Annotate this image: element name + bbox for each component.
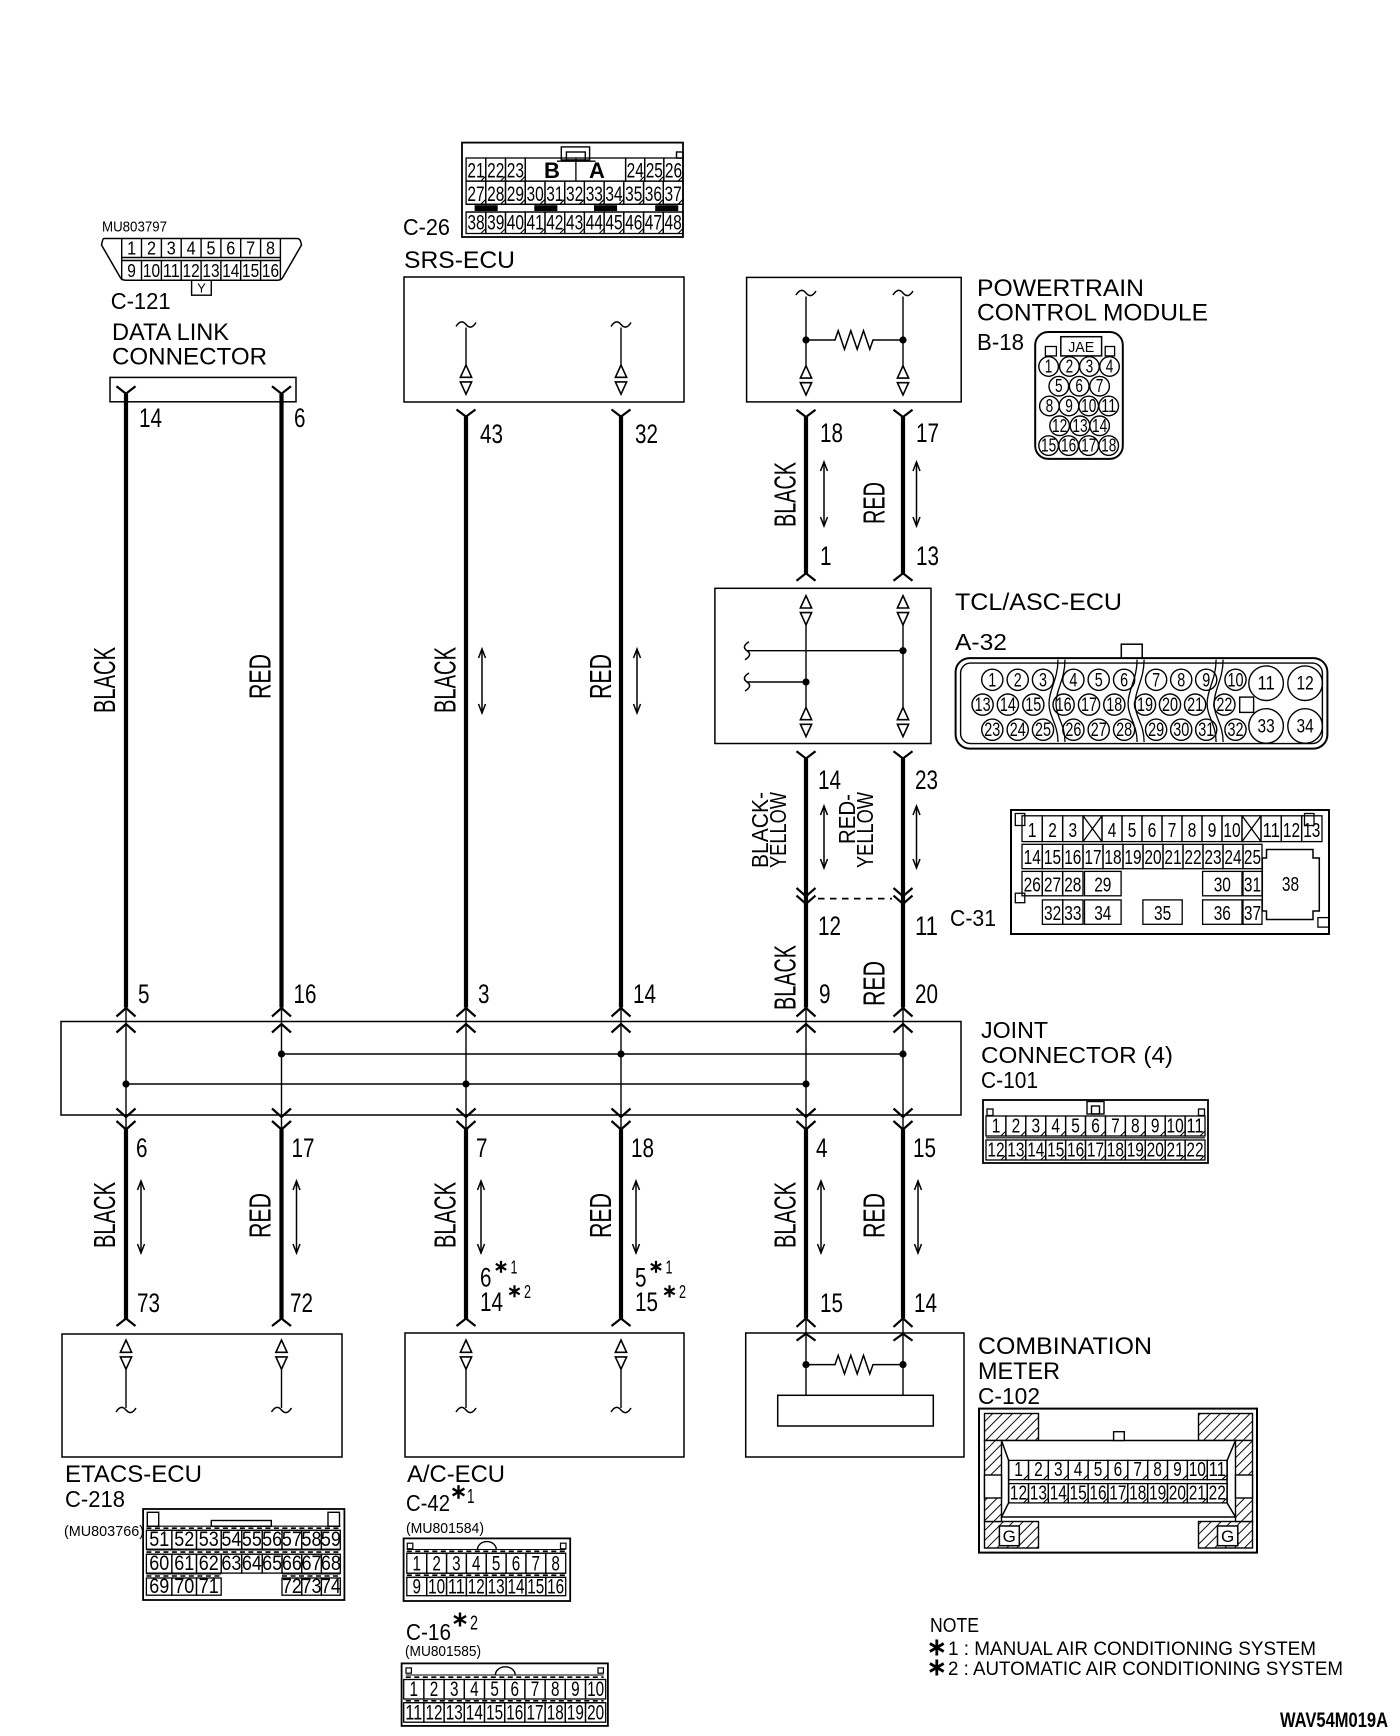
svg-text:2: 2 <box>1012 1115 1021 1137</box>
svg-text:28: 28 <box>1064 874 1081 896</box>
svg-text:6: 6 <box>1120 670 1128 691</box>
svg-text:6: 6 <box>512 1552 521 1575</box>
svg-text:15: 15 <box>242 261 259 281</box>
svg-text:14: 14 <box>139 403 162 433</box>
svg-text:34: 34 <box>1094 903 1111 925</box>
svg-text:15: 15 <box>1070 1482 1087 1504</box>
svg-text:2: 2 <box>679 1282 686 1302</box>
svg-text:3: 3 <box>452 1552 461 1575</box>
svg-text:2 : AUTOMATIC AIR CONDITIONING: 2 : AUTOMATIC AIR CONDITIONING SYSTEM <box>948 1659 1343 1680</box>
svg-text:5: 5 <box>1071 1115 1080 1137</box>
svg-text:35: 35 <box>625 183 642 206</box>
svg-text:31: 31 <box>1244 874 1261 896</box>
svg-text:18: 18 <box>1106 695 1122 716</box>
svg-text:7: 7 <box>1152 670 1160 691</box>
svg-text:12: 12 <box>183 261 200 281</box>
svg-text:4: 4 <box>1051 1115 1060 1137</box>
svg-text:G: G <box>1221 1527 1234 1546</box>
svg-text:43: 43 <box>566 212 583 235</box>
svg-text:(MU801584): (MU801584) <box>406 1520 484 1537</box>
svg-text:6: 6 <box>1148 820 1157 842</box>
svg-text:64: 64 <box>242 1552 262 1575</box>
svg-text:C-121: C-121 <box>111 288 171 314</box>
svg-text:13: 13 <box>916 541 939 571</box>
svg-text:20: 20 <box>1169 1482 1186 1504</box>
svg-text:72: 72 <box>290 1288 313 1318</box>
svg-text:3: 3 <box>478 979 490 1009</box>
svg-text:12: 12 <box>468 1576 485 1599</box>
svg-text:12: 12 <box>818 911 841 941</box>
svg-text:BLACK: BLACK <box>768 462 803 527</box>
svg-text:5: 5 <box>138 979 150 1009</box>
svg-text:8: 8 <box>1177 670 1185 691</box>
svg-text:2: 2 <box>147 238 156 258</box>
svg-text:5: 5 <box>1095 670 1103 691</box>
svg-text:15: 15 <box>635 1287 658 1317</box>
svg-text:RED: RED <box>857 482 892 524</box>
svg-text:23: 23 <box>507 160 524 183</box>
svg-text:BLACK: BLACK <box>87 1182 122 1248</box>
svg-text:18: 18 <box>631 1133 654 1163</box>
svg-text:67: 67 <box>302 1552 322 1575</box>
svg-text:COMBINATION: COMBINATION <box>978 1333 1152 1360</box>
svg-text:12: 12 <box>1283 820 1300 842</box>
svg-text:14: 14 <box>633 979 656 1009</box>
svg-text:36: 36 <box>1214 903 1231 925</box>
svg-text:17: 17 <box>527 1701 544 1724</box>
svg-text:19: 19 <box>1124 847 1141 869</box>
svg-text:26: 26 <box>1065 720 1081 741</box>
svg-text:RED: RED <box>583 1193 618 1238</box>
svg-text:13: 13 <box>488 1576 505 1599</box>
svg-text:17: 17 <box>1087 1139 1104 1161</box>
svg-text:42: 42 <box>546 212 563 235</box>
svg-text:14: 14 <box>1024 847 1041 869</box>
svg-text:40: 40 <box>507 212 524 235</box>
svg-text:BLACK: BLACK <box>768 1182 803 1248</box>
svg-text:19: 19 <box>567 1701 584 1724</box>
svg-text:5: 5 <box>1055 376 1063 396</box>
svg-text:YELLOW: YELLOW <box>852 792 878 868</box>
svg-text:5: 5 <box>207 238 216 258</box>
svg-text:2: 2 <box>1034 1459 1043 1481</box>
svg-text:17: 17 <box>1084 847 1101 869</box>
svg-text:44: 44 <box>586 212 603 235</box>
svg-text:8: 8 <box>1046 396 1054 416</box>
svg-text:48: 48 <box>665 212 682 235</box>
svg-text:47: 47 <box>645 212 662 235</box>
svg-text:4: 4 <box>1074 1459 1083 1481</box>
svg-text:21: 21 <box>1187 695 1203 716</box>
svg-text:63: 63 <box>221 1552 241 1575</box>
svg-text:22: 22 <box>1216 695 1232 716</box>
svg-text:31: 31 <box>546 183 563 206</box>
svg-text:11: 11 <box>1101 396 1116 416</box>
svg-text:22: 22 <box>1184 847 1201 869</box>
svg-text:10: 10 <box>143 261 160 281</box>
svg-text:16: 16 <box>1061 436 1076 456</box>
svg-text:11: 11 <box>405 1701 422 1724</box>
svg-text:A/C-ECU: A/C-ECU <box>407 1461 505 1488</box>
svg-text:10: 10 <box>428 1576 445 1599</box>
svg-text:11: 11 <box>915 911 938 941</box>
svg-text:19: 19 <box>1127 1139 1144 1161</box>
svg-text:4: 4 <box>1106 357 1114 377</box>
svg-text:7: 7 <box>531 1678 540 1701</box>
svg-text:71: 71 <box>199 1575 219 1598</box>
svg-text:2: 2 <box>1066 357 1074 377</box>
svg-text:38: 38 <box>467 212 484 235</box>
svg-text:NOTE: NOTE <box>930 1615 979 1637</box>
svg-text:51: 51 <box>149 1528 169 1551</box>
svg-text:6: 6 <box>1114 1459 1123 1481</box>
svg-text:1: 1 <box>992 1115 1001 1137</box>
svg-text:9: 9 <box>1151 1115 1160 1137</box>
svg-text:1: 1 <box>820 541 832 571</box>
svg-text:(MU801585): (MU801585) <box>405 1643 481 1660</box>
svg-text:13: 13 <box>1007 1139 1024 1161</box>
svg-text:18: 18 <box>1107 1139 1124 1161</box>
svg-text:53: 53 <box>199 1528 219 1551</box>
svg-text:14: 14 <box>466 1701 483 1724</box>
svg-text:37: 37 <box>665 183 682 206</box>
svg-text:JAE: JAE <box>1068 339 1094 356</box>
svg-text:6: 6 <box>136 1133 148 1163</box>
svg-text:13: 13 <box>446 1701 463 1724</box>
svg-text:8: 8 <box>551 1552 560 1575</box>
svg-text:11: 11 <box>1263 820 1280 842</box>
svg-text:39: 39 <box>487 212 504 235</box>
svg-text:3: 3 <box>1069 820 1078 842</box>
svg-text:B-18: B-18 <box>977 329 1024 355</box>
svg-text:C-31: C-31 <box>950 905 996 931</box>
svg-text:15: 15 <box>1047 1139 1064 1161</box>
svg-text:2: 2 <box>432 1552 441 1575</box>
svg-text:52: 52 <box>174 1528 194 1551</box>
svg-text:1: 1 <box>1014 1459 1023 1481</box>
svg-text:1: 1 <box>1028 820 1037 842</box>
svg-text:16: 16 <box>294 979 317 1009</box>
svg-text:23: 23 <box>984 720 1000 741</box>
svg-text:17: 17 <box>916 418 939 448</box>
svg-text:9: 9 <box>1065 396 1073 416</box>
svg-text:11: 11 <box>448 1576 465 1599</box>
svg-text:(MU803766): (MU803766) <box>64 1523 144 1540</box>
svg-text:C-26: C-26 <box>403 214 450 240</box>
svg-text:20: 20 <box>1162 695 1178 716</box>
svg-text:8: 8 <box>1153 1459 1162 1481</box>
svg-text:68: 68 <box>321 1552 341 1575</box>
svg-text:3: 3 <box>167 238 176 258</box>
svg-text:7: 7 <box>246 238 255 258</box>
svg-text:14: 14 <box>1027 1139 1044 1161</box>
svg-text:DATA LINK: DATA LINK <box>112 319 229 346</box>
svg-text:23: 23 <box>915 765 938 795</box>
svg-text:BLACK: BLACK <box>428 647 463 713</box>
svg-text:RED: RED <box>243 654 278 699</box>
svg-text:70: 70 <box>174 1575 194 1598</box>
svg-text:Y: Y <box>197 280 206 295</box>
svg-text:57: 57 <box>282 1528 302 1551</box>
svg-text:56: 56 <box>262 1528 282 1551</box>
svg-text:17: 17 <box>1081 436 1096 456</box>
svg-text:6: 6 <box>1075 376 1083 396</box>
svg-text:7: 7 <box>1168 820 1177 842</box>
svg-text:6: 6 <box>226 238 235 258</box>
svg-text:18: 18 <box>1101 436 1116 456</box>
svg-text:RED: RED <box>857 961 892 1006</box>
svg-text:9: 9 <box>571 1678 580 1701</box>
svg-text:16: 16 <box>262 261 279 281</box>
svg-text:7: 7 <box>532 1552 541 1575</box>
svg-text:8: 8 <box>551 1678 560 1701</box>
svg-text:16: 16 <box>506 1701 523 1724</box>
svg-text:15: 15 <box>820 1288 843 1318</box>
svg-text:7: 7 <box>1096 376 1104 396</box>
svg-text:13: 13 <box>975 695 991 716</box>
svg-text:69: 69 <box>149 1575 169 1598</box>
svg-text:C-102: C-102 <box>978 1383 1040 1409</box>
svg-text:2: 2 <box>1048 820 1057 842</box>
svg-text:14: 14 <box>1000 695 1016 716</box>
svg-text:4: 4 <box>1069 670 1077 691</box>
svg-text:METER: METER <box>978 1358 1060 1385</box>
svg-text:1: 1 <box>1045 357 1053 377</box>
svg-text:15: 15 <box>486 1701 503 1724</box>
svg-text:BLACK: BLACK <box>768 945 803 1010</box>
svg-text:22: 22 <box>1186 1139 1203 1161</box>
svg-text:1: 1 <box>412 1552 421 1575</box>
svg-text:2: 2 <box>524 1282 531 1302</box>
svg-text:9: 9 <box>1208 820 1217 842</box>
svg-text:15: 15 <box>527 1576 544 1599</box>
svg-text:WAV54M019A: WAV54M019A <box>1280 1709 1388 1732</box>
svg-text:16: 16 <box>547 1576 564 1599</box>
svg-text:14: 14 <box>508 1576 525 1599</box>
svg-text:11: 11 <box>1186 1115 1203 1137</box>
svg-text:14: 14 <box>818 765 841 795</box>
svg-text:10: 10 <box>587 1678 604 1701</box>
svg-text:46: 46 <box>625 212 642 235</box>
svg-text:18: 18 <box>820 418 843 448</box>
svg-text:32: 32 <box>635 419 658 449</box>
svg-text:12: 12 <box>987 1139 1004 1161</box>
svg-text:24: 24 <box>1224 847 1241 869</box>
svg-text:18: 18 <box>547 1701 564 1724</box>
svg-text:POWERTRAIN: POWERTRAIN <box>977 275 1144 302</box>
svg-text:5: 5 <box>1128 820 1137 842</box>
svg-text:30: 30 <box>1214 874 1231 896</box>
svg-text:BLACK: BLACK <box>428 1182 463 1248</box>
svg-text:13: 13 <box>202 261 219 281</box>
svg-text:26: 26 <box>1024 874 1041 896</box>
svg-text:13: 13 <box>1072 416 1087 436</box>
svg-text:12: 12 <box>1297 674 1314 695</box>
svg-text:65: 65 <box>262 1552 282 1575</box>
svg-text:29: 29 <box>507 183 524 206</box>
svg-text:4: 4 <box>816 1133 828 1163</box>
svg-text:11: 11 <box>163 261 180 281</box>
svg-text:23: 23 <box>1204 847 1221 869</box>
svg-text:1: 1 <box>467 1486 475 1508</box>
svg-text:CONNECTOR (4): CONNECTOR (4) <box>981 1042 1173 1068</box>
svg-text:6: 6 <box>1091 1115 1100 1137</box>
svg-text:54: 54 <box>221 1528 241 1551</box>
svg-text:73: 73 <box>302 1575 322 1598</box>
svg-text:16: 16 <box>1067 1139 1084 1161</box>
svg-text:72: 72 <box>282 1575 302 1598</box>
svg-text:CONNECTOR: CONNECTOR <box>112 344 267 371</box>
svg-text:30: 30 <box>1173 720 1189 741</box>
svg-text:20: 20 <box>1144 847 1161 869</box>
svg-text:1: 1 <box>988 670 996 691</box>
svg-text:6: 6 <box>511 1678 520 1701</box>
svg-text:14: 14 <box>1092 416 1107 436</box>
svg-text:7: 7 <box>1133 1459 1142 1481</box>
svg-text:66: 66 <box>282 1552 302 1575</box>
svg-text:1: 1 <box>410 1678 419 1701</box>
svg-text:5: 5 <box>490 1678 499 1701</box>
svg-text:14: 14 <box>222 261 239 281</box>
svg-text:28: 28 <box>1116 720 1132 741</box>
svg-text:38: 38 <box>1282 874 1299 896</box>
svg-text:15: 15 <box>1025 695 1041 716</box>
svg-text:3: 3 <box>1086 357 1094 377</box>
svg-text:2: 2 <box>430 1678 439 1701</box>
svg-text:RED: RED <box>243 1193 278 1238</box>
svg-text:7: 7 <box>476 1133 488 1163</box>
svg-text:3: 3 <box>1032 1115 1041 1137</box>
svg-text:JOINT: JOINT <box>981 1017 1048 1043</box>
svg-text:1: 1 <box>511 1258 518 1278</box>
svg-text:25: 25 <box>1035 720 1051 741</box>
svg-text:6: 6 <box>294 403 306 433</box>
svg-text:12: 12 <box>1010 1482 1027 1504</box>
svg-text:4: 4 <box>1108 820 1117 842</box>
svg-text:3: 3 <box>1054 1459 1063 1481</box>
svg-text:3: 3 <box>1039 670 1047 691</box>
svg-text:YELLOW: YELLOW <box>765 792 791 868</box>
svg-text:19: 19 <box>1137 695 1153 716</box>
svg-text:27: 27 <box>1044 874 1061 896</box>
svg-text:5: 5 <box>492 1552 501 1575</box>
svg-text:25: 25 <box>1244 847 1261 869</box>
svg-text:10: 10 <box>1228 670 1244 691</box>
svg-text:16: 16 <box>1064 847 1081 869</box>
svg-text:41: 41 <box>527 212 544 235</box>
svg-text:18: 18 <box>1104 847 1121 869</box>
svg-text:1: 1 <box>127 238 136 258</box>
svg-text:37: 37 <box>1244 903 1261 925</box>
svg-text:7: 7 <box>1111 1115 1120 1137</box>
svg-text:73: 73 <box>137 1288 160 1318</box>
svg-text:15: 15 <box>1041 436 1056 456</box>
svg-text:15: 15 <box>1044 847 1061 869</box>
svg-text:BLACK: BLACK <box>87 647 122 713</box>
svg-text:27: 27 <box>1091 720 1107 741</box>
svg-text:10: 10 <box>1081 396 1096 416</box>
svg-text:C-101: C-101 <box>981 1067 1038 1093</box>
svg-text:8: 8 <box>1131 1115 1140 1137</box>
svg-text:9: 9 <box>1173 1459 1182 1481</box>
svg-text:32: 32 <box>1228 720 1244 741</box>
svg-text:29: 29 <box>1094 874 1111 896</box>
svg-text:33: 33 <box>1258 717 1275 738</box>
svg-text:5: 5 <box>1094 1459 1103 1481</box>
svg-text:9: 9 <box>1202 670 1210 691</box>
svg-text:30: 30 <box>527 183 544 206</box>
svg-text:C-218: C-218 <box>65 1486 125 1512</box>
svg-text:11: 11 <box>1258 674 1275 695</box>
svg-text:1: 1 <box>666 1258 673 1278</box>
svg-text:33: 33 <box>1064 903 1081 925</box>
svg-text:MU803797: MU803797 <box>102 219 167 236</box>
svg-text:10: 10 <box>1223 820 1240 842</box>
svg-text:RED: RED <box>583 654 618 699</box>
svg-text:9: 9 <box>412 1576 421 1599</box>
svg-text:74: 74 <box>321 1575 341 1598</box>
svg-text:29: 29 <box>1148 720 1164 741</box>
svg-text:12: 12 <box>1052 416 1067 436</box>
svg-text:12: 12 <box>426 1701 443 1724</box>
svg-text:20: 20 <box>1147 1139 1164 1161</box>
svg-text:3: 3 <box>450 1678 459 1701</box>
svg-text:14: 14 <box>914 1288 937 1318</box>
svg-text:58: 58 <box>302 1528 322 1551</box>
svg-text:CONTROL MODULE: CONTROL MODULE <box>977 300 1208 327</box>
svg-text:1 : MANUAL AIR CONDITIONING SY: 1 : MANUAL AIR CONDITIONING SYSTEM <box>948 1639 1316 1660</box>
svg-text:G: G <box>1003 1527 1016 1546</box>
svg-text:62: 62 <box>199 1552 219 1575</box>
svg-text:C-16: C-16 <box>406 1619 451 1645</box>
svg-text:4: 4 <box>470 1678 479 1701</box>
svg-text:35: 35 <box>1154 903 1171 925</box>
svg-text:2: 2 <box>470 1613 478 1635</box>
svg-text:20: 20 <box>587 1701 604 1724</box>
svg-text:A-32: A-32 <box>955 629 1007 655</box>
svg-text:61: 61 <box>174 1552 194 1575</box>
svg-text:32: 32 <box>1044 903 1061 925</box>
svg-text:10: 10 <box>1167 1115 1184 1137</box>
svg-text:4: 4 <box>472 1552 481 1575</box>
svg-text:15: 15 <box>913 1133 936 1163</box>
svg-text:SRS-ECU: SRS-ECU <box>404 247 515 274</box>
svg-text:17: 17 <box>1081 695 1097 716</box>
svg-text:RED: RED <box>857 1193 892 1238</box>
svg-text:43: 43 <box>480 419 503 449</box>
svg-text:17: 17 <box>292 1133 315 1163</box>
svg-text:8: 8 <box>1188 820 1197 842</box>
svg-text:9: 9 <box>127 261 136 281</box>
svg-text:55: 55 <box>242 1528 262 1551</box>
svg-text:9: 9 <box>819 979 831 1009</box>
svg-text:21: 21 <box>1167 1139 1184 1161</box>
svg-text:ETACS-ECU: ETACS-ECU <box>65 1461 202 1488</box>
svg-text:34: 34 <box>1297 717 1315 738</box>
svg-text:59: 59 <box>321 1528 341 1551</box>
svg-text:4: 4 <box>187 238 196 258</box>
svg-text:8: 8 <box>266 238 275 258</box>
svg-text:2: 2 <box>1014 670 1022 691</box>
svg-text:13: 13 <box>1303 820 1320 842</box>
svg-text:36: 36 <box>645 183 662 206</box>
svg-text:TCL/ASC-ECU: TCL/ASC-ECU <box>955 589 1122 616</box>
svg-text:20: 20 <box>915 979 938 1009</box>
svg-text:C-42: C-42 <box>406 1490 450 1516</box>
svg-text:21: 21 <box>1164 847 1181 869</box>
svg-text:24: 24 <box>1010 720 1026 741</box>
svg-text:14: 14 <box>480 1287 503 1317</box>
